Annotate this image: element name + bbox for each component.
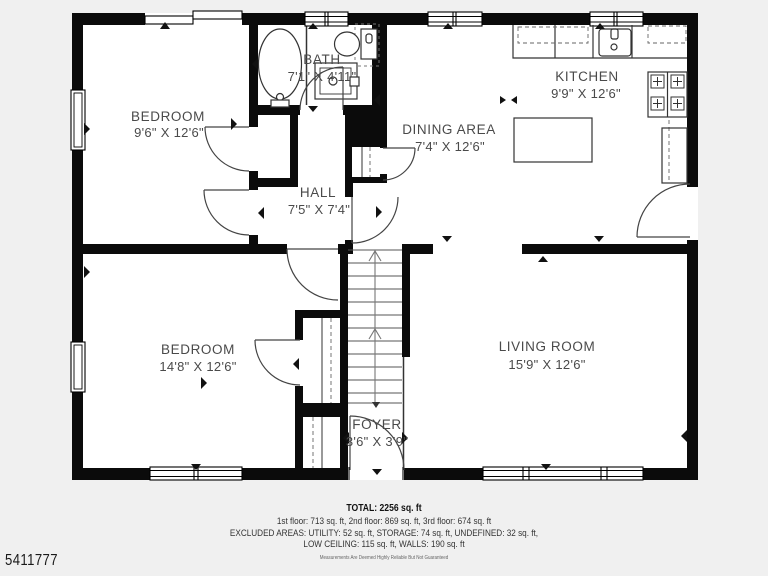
room-label-bedroom-upper: BEDROOM (131, 109, 205, 124)
room-label-living: LIVING ROOM (499, 339, 596, 354)
room-label-hall: HALL (300, 185, 336, 200)
floor-plan-drawing: BEDROOM 9'6" X 12'6" BATH 7'1" X 4'11" K… (0, 0, 768, 496)
room-dims-living: 15'9" X 12'6" (508, 357, 585, 372)
floor-plan-page: BEDROOM 9'6" X 12'6" BATH 7'1" X 4'11" K… (0, 0, 768, 576)
room-dims-dining: 7'4" X 12'6" (415, 139, 485, 154)
room-dims-bedroom-upper: 9'6" X 12'6" (134, 125, 204, 140)
room-label-bath: BATH (303, 52, 340, 67)
summary-total: TOTAL: 2256 sq. ft (54, 503, 714, 514)
room-dims-bath: 7'1" X 4'11" (288, 69, 357, 84)
room-label-kitchen: KITCHEN (555, 69, 618, 84)
room-label-bedroom-lower: BEDROOM (161, 342, 235, 357)
plate-number: 5411777 (5, 552, 58, 570)
bathtub-icon (259, 29, 302, 99)
room-dims-kitchen: 9'9" X 12'6" (551, 86, 621, 101)
summary-excluded-areas: EXCLUDED AREAS: UTILITY: 52 sq. ft, STOR… (54, 528, 714, 539)
room-dims-hall: 7'5" X 7'4" (288, 202, 350, 217)
disclaimer-text: Measurements Are Deemed Highly Reliable … (38, 555, 729, 561)
room-label-dining: DINING AREA (402, 122, 496, 137)
summary-low-ceiling: LOW CEILING: 115 sq. ft, WALLS: 190 sq. … (54, 539, 714, 550)
closet-interiors (352, 147, 387, 177)
room-label-foyer: FOYER (352, 417, 402, 432)
room-dims-bedroom-lower: 14'8" X 12'6" (159, 359, 236, 374)
summary-floors: 1st floor: 713 sq. ft, 2nd floor: 869 sq… (54, 516, 714, 527)
room-dims-foyer: 3'6" X 3'9" (346, 434, 408, 449)
